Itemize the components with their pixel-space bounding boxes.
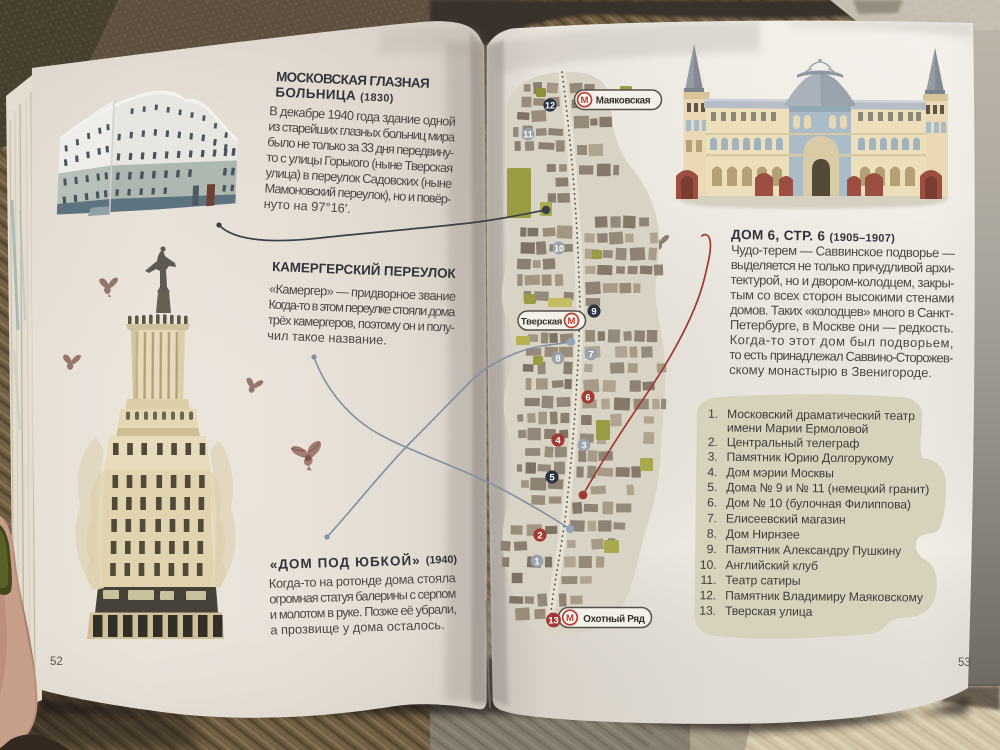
svg-text:10.: 10. xyxy=(700,558,717,572)
svg-text:3: 3 xyxy=(581,440,586,451)
svg-text:2: 2 xyxy=(537,530,542,541)
svg-text:8.: 8. xyxy=(707,527,717,541)
svg-text:13.: 13. xyxy=(699,604,716,618)
svg-text:7: 7 xyxy=(588,349,593,360)
svg-text:9.: 9. xyxy=(707,542,717,556)
svg-text:52: 52 xyxy=(50,656,63,668)
svg-text:М: М xyxy=(566,613,574,624)
svg-text:Елисеевский магазин: Елисеевский магазин xyxy=(726,511,846,526)
svg-text:4: 4 xyxy=(555,435,561,446)
svg-text:10: 10 xyxy=(554,243,564,253)
svg-text:8: 8 xyxy=(555,353,560,364)
svg-text:6: 6 xyxy=(585,392,590,403)
svg-text:Памятник Юрию Долгорукому: Памятник Юрию Долгорукому xyxy=(727,450,895,466)
svg-text:скому монастырю в Звенигороде.: скому монастырю в Звенигороде. xyxy=(729,362,932,380)
svg-text:12.: 12. xyxy=(699,588,716,602)
svg-text:Центральный телеграф: Центральный телеграф xyxy=(727,435,860,450)
svg-text:3.: 3. xyxy=(708,450,718,464)
svg-text:Дома № 9 и № 11 (немецкий гран: Дома № 9 и № 11 (немецкий гранит) xyxy=(726,480,929,496)
svg-text:1.: 1. xyxy=(708,407,718,421)
svg-text:11.: 11. xyxy=(700,573,716,587)
svg-text:М: М xyxy=(581,95,589,106)
svg-text:1: 1 xyxy=(534,556,540,567)
svg-text:2.: 2. xyxy=(708,435,718,449)
svg-text:Тверская улица: Тверская улица xyxy=(725,604,813,619)
svg-text:М: М xyxy=(568,316,576,327)
svg-text:12: 12 xyxy=(545,100,555,110)
svg-text:6.: 6. xyxy=(707,495,717,509)
svg-text:Английский клуб: Английский клуб xyxy=(725,558,818,573)
svg-text:Тверская: Тверская xyxy=(521,317,562,328)
svg-text:Памятник Александру Пушкину: Памятник Александру Пушкину xyxy=(726,542,903,558)
svg-text:Дом мэрии Москвы: Дом мэрии Москвы xyxy=(726,465,834,480)
svg-text:9: 9 xyxy=(591,306,596,317)
svg-text:5.: 5. xyxy=(707,480,717,494)
svg-text:13: 13 xyxy=(548,616,559,627)
svg-text:11: 11 xyxy=(523,129,533,139)
svg-text:4.: 4. xyxy=(707,465,717,479)
svg-text:Театр сатиры: Театр сатиры xyxy=(725,573,800,588)
svg-text:Дом № 10 (булочная Филиппова): Дом № 10 (булочная Филиппова) xyxy=(726,496,911,512)
svg-text:Маяковская: Маяковская xyxy=(596,96,651,107)
svg-text:5: 5 xyxy=(549,472,555,483)
svg-text:Дом Нирнзее: Дом Нирнзее xyxy=(726,527,800,542)
svg-text:Охотный Ряд: Охотный Ряд xyxy=(583,614,646,625)
svg-text:7.: 7. xyxy=(707,511,717,525)
svg-text:имени Марии Ермоловой: имени Марии Ермоловой xyxy=(727,421,869,436)
svg-text:(1940): (1940) xyxy=(426,554,458,567)
svg-text:53: 53 xyxy=(958,657,971,669)
svg-text:Памятник Владимиру Маяковскому: Памятник Владимиру Маяковскому xyxy=(725,588,924,604)
